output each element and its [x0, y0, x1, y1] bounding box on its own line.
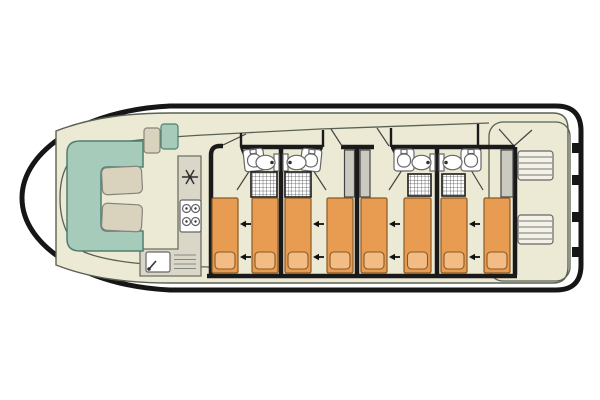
bed: [285, 198, 311, 273]
bed: [212, 198, 238, 273]
bed: [361, 198, 387, 273]
saloon-table: [101, 166, 142, 195]
sink-faucet-icon: [146, 252, 170, 272]
stove-burners-icon: [180, 200, 201, 232]
sliding-door: [360, 150, 370, 197]
deck-plan-svg: [0, 0, 600, 400]
sliding-door: [345, 150, 355, 197]
bed: [484, 198, 510, 273]
boat-floor-plan: [0, 0, 600, 400]
bed: [441, 198, 467, 273]
bed: [252, 198, 278, 273]
stairs-bottom: [518, 215, 553, 244]
cabin-beds: [212, 198, 510, 273]
saloon-table: [101, 203, 142, 232]
stairs-top: [518, 151, 553, 180]
sliding-door-stern: [501, 150, 513, 197]
bed: [404, 198, 431, 273]
helm-seat: [144, 128, 160, 153]
bed: [327, 198, 353, 273]
helm-seat: [161, 124, 178, 149]
